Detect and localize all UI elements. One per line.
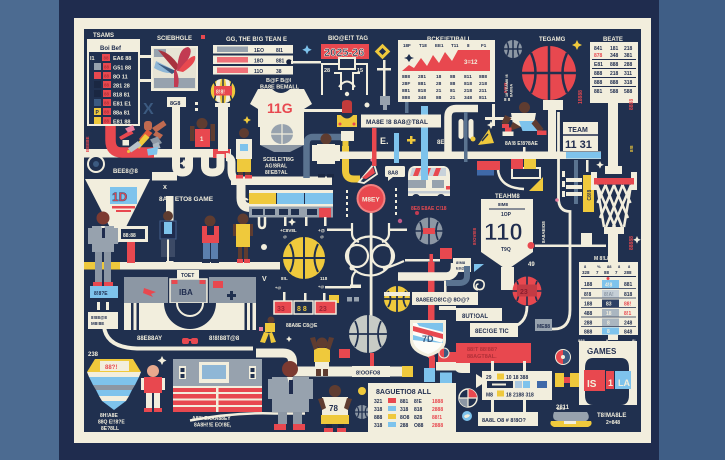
svg-text:1: 1: [608, 378, 613, 388]
svg-text:11O: 11O: [254, 69, 263, 75]
svg-text:881: 881: [624, 282, 633, 288]
svg-text:I1: I1: [90, 56, 95, 62]
svg-text:88A8E C8@E: 88A8E C8@E: [286, 323, 318, 329]
svg-text:78: 78: [329, 404, 338, 413]
svg-text:8AGUETIO8 ALL: 8AGUETIO8 ALL: [376, 389, 432, 396]
svg-text:588: 588: [624, 89, 633, 95]
svg-text:8A8!8A: 8A8!8A: [510, 84, 514, 97]
svg-text:8: 8: [607, 321, 610, 327]
svg-text:T11: T11: [451, 43, 459, 48]
svg-text:38: 38: [276, 69, 282, 75]
svg-text:28F: 28F: [402, 81, 410, 87]
svg-text:8I!EB?AL: 8I!EB?AL: [265, 170, 288, 176]
svg-text:@: @: [320, 234, 324, 239]
svg-text:88: 88: [104, 92, 110, 97]
svg-text:2888: 2888: [432, 423, 443, 429]
svg-text:888: 888: [374, 415, 383, 421]
svg-text:E81 E1: E81 E1: [113, 102, 131, 108]
svg-text:8I1: 8I1: [276, 48, 283, 54]
svg-text:88: 88: [104, 110, 110, 115]
svg-text:8O 11: 8O 11: [113, 75, 128, 81]
svg-text:Boi Bef: Boi Bef: [100, 46, 122, 52]
svg-text:318: 318: [624, 80, 633, 86]
svg-text:49: 49: [528, 262, 535, 268]
svg-text:E81 88: E81 88: [113, 120, 130, 126]
svg-text:BEEBE: BEEBE: [85, 136, 90, 152]
svg-text:81: 81: [450, 88, 456, 94]
svg-text:1888: 1888: [432, 399, 443, 405]
svg-text:888: 888: [402, 95, 410, 101]
svg-text:8A8AEIO8: 8A8AEIO8: [541, 221, 546, 243]
svg-text:88: 88: [436, 95, 442, 101]
svg-text:21: 21: [436, 88, 442, 94]
svg-text:G51 88: G51 88: [113, 66, 131, 72]
svg-text:88: 88: [450, 81, 456, 87]
svg-text:818 81: 818 81: [113, 93, 130, 99]
svg-text:+@: +@: [318, 284, 324, 289]
svg-text:238: 238: [88, 352, 99, 358]
svg-text:88: 88: [104, 101, 110, 106]
svg-text:811: 811: [479, 95, 487, 101]
svg-text:288: 288: [584, 321, 593, 327]
svg-text:8!OOFO8: 8!OOFO8: [356, 371, 380, 377]
svg-text:1D: 1D: [112, 190, 128, 204]
svg-text:8G8: 8G8: [170, 101, 180, 107]
svg-text:88: 88: [450, 74, 456, 80]
svg-text:888: 888: [402, 74, 410, 80]
svg-text:18 TEAM8 !8: 18 TEAM8 !8: [505, 74, 509, 97]
svg-text:328: 328: [582, 270, 590, 275]
svg-text:88: 88: [104, 56, 110, 61]
svg-text:321: 321: [374, 399, 383, 405]
svg-text:SCIEBHGLE: SCIEBHGLE: [157, 36, 192, 42]
svg-text:8E8 E8AE C!18: 8E8 E8AE C!18: [411, 206, 447, 212]
svg-text:218: 218: [479, 81, 487, 87]
svg-text:288: 288: [624, 62, 633, 68]
svg-text:8A8H!!E EO!8E,: 8A8H!!E EO!8E,: [194, 423, 232, 429]
svg-text:29: 29: [486, 375, 492, 381]
svg-text:110: 110: [484, 219, 523, 246]
svg-text:23: 23: [319, 306, 327, 313]
svg-text:M8EY: M8EY: [362, 197, 380, 204]
svg-text:281 28: 281 28: [113, 84, 130, 90]
svg-text:M8!8E: M8!8E: [91, 321, 104, 326]
svg-text:8!L: 8!L: [281, 276, 288, 281]
svg-text:x: x: [163, 184, 167, 191]
svg-text:88: 88: [104, 119, 110, 124]
svg-text:23: 23: [520, 289, 528, 296]
svg-text:8!88@8: 8!88@8: [91, 315, 107, 320]
svg-text:288: 288: [400, 423, 409, 429]
svg-text:3=12: 3=12: [464, 60, 478, 66]
svg-text:MA8E !8 8A8@T8AL: MA8E !8 8A8@T8AL: [366, 119, 428, 126]
svg-text:348: 348: [610, 53, 619, 59]
svg-text:8A8EEO8!C@ 8O@?: 8A8EEO8!C@ 8O@?: [416, 298, 470, 304]
svg-text:888: 888: [479, 74, 487, 80]
svg-text:GAMES: GAMES: [587, 347, 617, 356]
svg-text:881: 881: [276, 59, 285, 65]
svg-text:118: 118: [320, 276, 328, 281]
svg-text:M8: M8: [486, 393, 493, 399]
svg-text:8!A!: 8!A!: [604, 292, 614, 298]
svg-text:8 8: 8 8: [504, 97, 511, 102]
svg-text:SCIELE!TI8G: SCIELE!TI8G: [263, 157, 294, 163]
svg-text:888: 888: [610, 62, 619, 68]
svg-text:88!: 88!: [624, 302, 632, 308]
svg-text:X: X: [143, 101, 154, 118]
svg-text:8IM8: 8IM8: [498, 202, 509, 207]
svg-text:GG, THE B!G TEAN E: GG, THE B!G TEAN E: [226, 37, 287, 43]
svg-text:181: 181: [610, 46, 619, 52]
svg-text:28: 28: [436, 81, 442, 87]
svg-text:18O: 18O: [254, 59, 264, 65]
svg-text:88: 88: [604, 270, 610, 275]
svg-text:IS: IS: [587, 379, 597, 390]
svg-text:88?!: 88?!: [105, 365, 117, 371]
svg-text:F1: F1: [481, 43, 487, 48]
svg-text:T8!MA8LE: T8!MA8LE: [597, 413, 626, 419]
svg-text:BIO@E!T TAG: BIO@E!T TAG: [328, 36, 368, 42]
svg-text:8!8!88T@8: 8!8!88T@8: [209, 336, 240, 342]
svg-text:818: 818: [464, 81, 472, 87]
svg-text:848: 848: [624, 330, 633, 336]
svg-text:888: 888: [610, 80, 619, 86]
svg-text:8EM: 8EM: [437, 140, 449, 146]
svg-text:E.: E.: [380, 136, 389, 146]
svg-text:10 18 388: 10 18 388: [506, 375, 528, 381]
svg-text:V: V: [262, 276, 267, 283]
svg-text:8EC!GE TIC: 8EC!GE TIC: [475, 329, 509, 335]
svg-text:348: 348: [464, 95, 472, 101]
svg-text:248: 248: [624, 321, 633, 327]
svg-text:188: 188: [584, 302, 593, 308]
svg-text:88E88AY: 88E88AY: [137, 336, 162, 342]
svg-text:TEGAMG: TEGAMG: [539, 37, 566, 43]
svg-text:488: 488: [584, 311, 593, 317]
svg-text:8: 8: [607, 329, 610, 335]
svg-text:EA6 88: EA6 88: [113, 56, 131, 62]
svg-text:@: @: [283, 234, 287, 239]
svg-text:878: 878: [594, 53, 603, 59]
svg-text:311: 311: [624, 71, 632, 77]
svg-text:881: 881: [594, 89, 603, 95]
svg-text:88: 88: [104, 74, 110, 79]
svg-text:318: 318: [374, 423, 383, 429]
svg-text:O88: O88: [414, 423, 424, 429]
svg-text:BEE8@8: BEE8@8: [113, 169, 139, 175]
svg-text:%: %: [597, 264, 601, 269]
svg-text:88 8: 88 8: [557, 406, 566, 411]
svg-text:28: 28: [324, 68, 330, 74]
svg-text:2888: 2888: [432, 407, 443, 413]
svg-text:E81: E81: [594, 62, 603, 68]
svg-text:8 8: 8 8: [297, 306, 307, 313]
svg-text:7D: 7D: [422, 334, 434, 344]
svg-text:8!OV8!8: 8!OV8!8: [472, 227, 477, 245]
svg-text:218: 218: [610, 71, 619, 77]
svg-text:88:88: 88:88: [123, 233, 136, 239]
svg-text:841: 841: [594, 46, 603, 52]
svg-text:A88! EAAA88EY: A88! EAAA88EY: [192, 416, 231, 422]
svg-text:TSAMS: TSAMS: [93, 33, 114, 39]
svg-text:88a 81: 88a 81: [113, 111, 130, 117]
svg-text:+C8V8L: +C8V8L: [280, 228, 297, 233]
svg-text:B@F B@I: B@F B@I: [266, 78, 292, 84]
svg-text:828: 828: [414, 415, 423, 421]
svg-text:C8!8: C8!8: [587, 189, 593, 200]
svg-text:18888: 18888: [578, 90, 584, 104]
svg-text:1EO: 1EO: [254, 48, 264, 54]
svg-text:88: 88: [607, 264, 612, 269]
svg-text:1OP: 1OP: [501, 212, 512, 218]
svg-text:8A8! ETO8 GAME: 8A8! ETO8 GAME: [159, 196, 214, 203]
svg-text:588: 588: [610, 89, 619, 95]
svg-text:T9Q: T9Q: [501, 247, 511, 253]
svg-text:281: 281: [418, 74, 426, 80]
svg-text:8UT!OAL: 8UT!OAL: [462, 314, 488, 320]
svg-text:18F: 18F: [403, 43, 411, 48]
svg-text:8!8?E: 8!8?E: [94, 291, 108, 297]
svg-text:88: 88: [104, 65, 110, 70]
svg-text:211: 211: [479, 88, 487, 94]
svg-text:15: 15: [357, 68, 363, 74]
svg-text:8!E: 8!E: [414, 399, 422, 405]
svg-text:8A8: 8A8: [388, 171, 398, 177]
svg-text:11G: 11G: [267, 100, 293, 116]
svg-text:8!8: 8!8: [584, 292, 591, 298]
svg-text:TEAM: TEAM: [568, 127, 588, 134]
svg-text:888: 888: [594, 71, 603, 77]
svg-text:8E?8LL: 8E?8LL: [101, 426, 119, 432]
svg-text:88!T 88!88?: 88!T 88!88?: [467, 347, 498, 353]
svg-text:888: 888: [594, 80, 603, 86]
svg-text:888: 888: [584, 330, 593, 336]
svg-text:318: 318: [374, 407, 383, 413]
svg-text:318: 318: [400, 407, 409, 413]
svg-text:8!8!: 8!8!: [216, 90, 225, 96]
svg-text:88!1: 88!1: [432, 415, 442, 421]
svg-text:M 8!L8: M 8!L8: [594, 256, 610, 262]
svg-text:88Q E!!8?E: 88Q E!!8?E: [98, 420, 125, 426]
svg-text:88: 88: [104, 83, 110, 88]
svg-text:881: 881: [402, 88, 410, 94]
svg-text:AG!8RAL: AG!8RAL: [265, 164, 287, 170]
svg-text:811: 811: [464, 74, 472, 80]
svg-text:88AGT8AL.: 88AGT8AL.: [467, 354, 497, 360]
svg-text:88888: 88888: [629, 236, 635, 250]
svg-text:381: 381: [624, 53, 633, 59]
svg-text:11 31: 11 31: [565, 139, 592, 151]
svg-text:348: 348: [418, 95, 426, 101]
svg-text:881: 881: [418, 81, 426, 87]
svg-text:LA: LA: [618, 378, 630, 388]
svg-text:818: 818: [624, 292, 633, 298]
svg-text:8H!A8E: 8H!A8E: [100, 413, 118, 419]
svg-text:218: 218: [464, 88, 472, 94]
svg-text:+@: +@: [318, 228, 326, 233]
svg-text:ME88: ME88: [537, 324, 550, 330]
svg-text:2=848: 2=848: [606, 420, 620, 426]
svg-text:218: 218: [624, 46, 633, 52]
svg-text:T18: T18: [419, 43, 427, 48]
svg-text:EE1: EE1: [435, 43, 444, 48]
svg-text:8!8: 8!8: [629, 145, 634, 152]
svg-text:818: 818: [414, 407, 423, 413]
svg-text:8O8: 8O8: [400, 415, 410, 421]
svg-text:83: 83: [606, 302, 612, 308]
svg-text:TOET: TOET: [181, 273, 194, 279]
svg-text:8!M8: 8!M8: [456, 260, 466, 265]
svg-text:8A!8 E!8?8AE: 8A!8 E!8?8AE: [505, 141, 538, 147]
svg-text:881: 881: [400, 399, 409, 405]
svg-text:4!8: 4!8: [605, 283, 612, 289]
svg-text:288: 288: [624, 270, 632, 275]
svg-text:8888: 8888: [629, 99, 635, 110]
svg-text:18: 18: [436, 74, 442, 80]
svg-text:8A8L O8 # 8!8O?: 8A8L O8 # 8!8O?: [482, 418, 527, 424]
svg-text:+@: +@: [275, 285, 281, 290]
svg-text:33: 33: [277, 306, 285, 313]
svg-text:21: 21: [450, 95, 456, 101]
svg-text:818: 818: [418, 88, 426, 94]
svg-text:18 2188 318: 18 2188 318: [506, 393, 534, 399]
svg-text:18: 18: [606, 311, 612, 317]
svg-text:IBA: IBA: [179, 288, 193, 297]
svg-text:188: 188: [584, 282, 593, 288]
svg-text:8!1: 8!1: [624, 311, 631, 317]
